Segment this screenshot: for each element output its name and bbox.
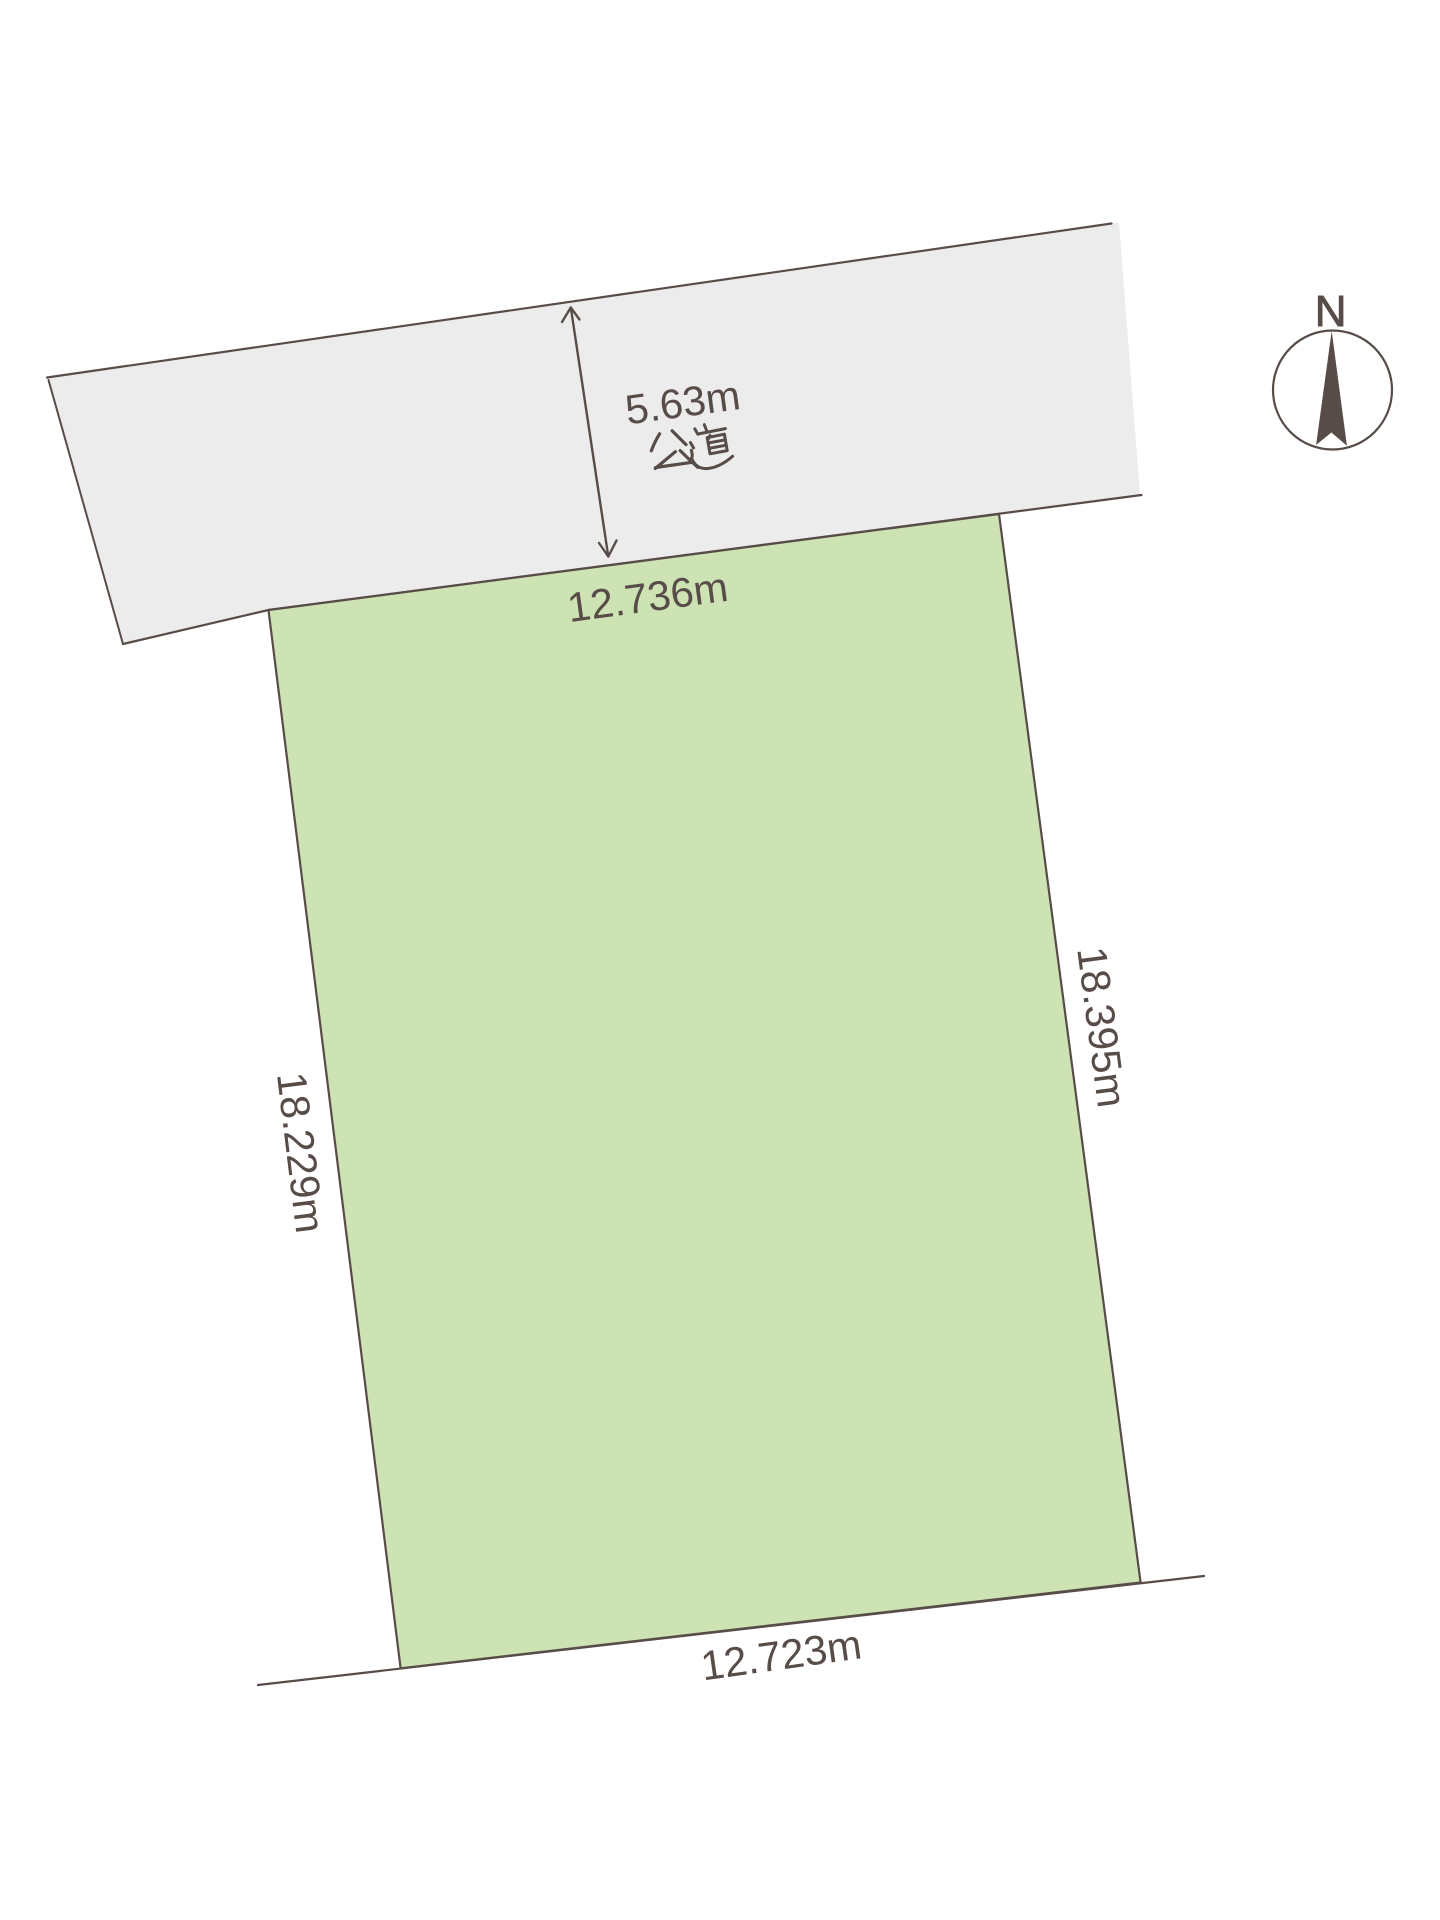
svg-text:N: N [1315, 287, 1347, 336]
